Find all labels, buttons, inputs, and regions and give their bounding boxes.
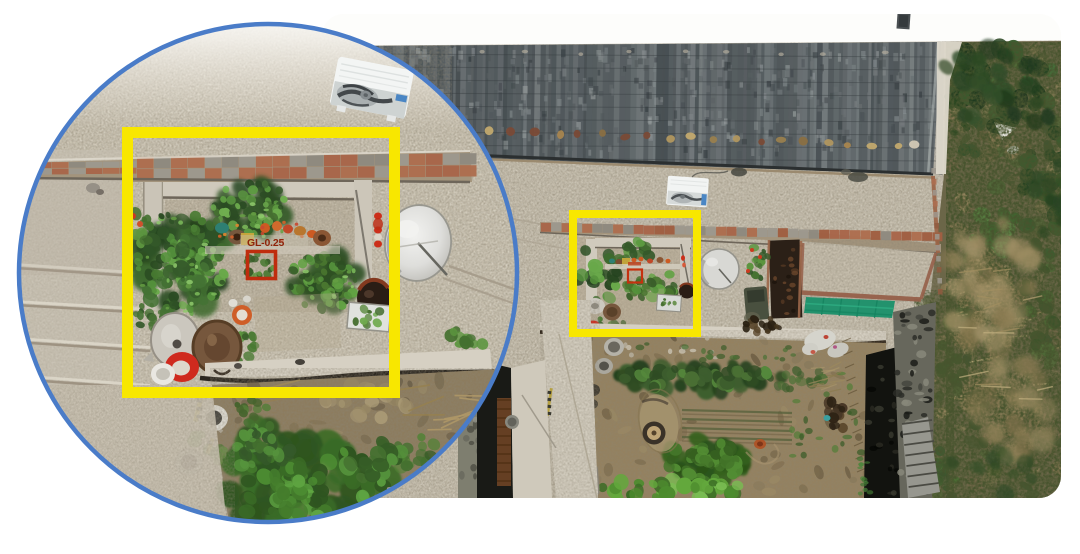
svg-text:GL-0.25: GL-0.25 <box>247 237 284 249</box>
